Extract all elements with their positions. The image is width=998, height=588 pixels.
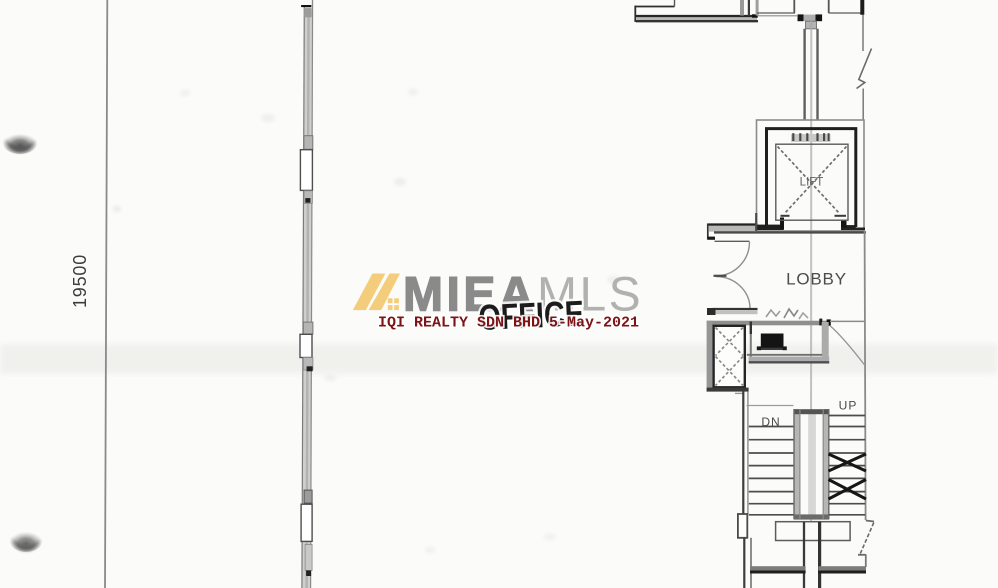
svg-text:DN: DN bbox=[761, 415, 780, 429]
svg-text:LOBBY: LOBBY bbox=[786, 270, 847, 289]
svg-text:LIFT: LIFT bbox=[800, 177, 824, 189]
svg-text:IQI REALTY SDN BHD 5-May-2021: IQI REALTY SDN BHD 5-May-2021 bbox=[378, 315, 639, 332]
svg-text:19500: 19500 bbox=[70, 254, 90, 308]
svg-text:UP: UP bbox=[839, 399, 858, 413]
